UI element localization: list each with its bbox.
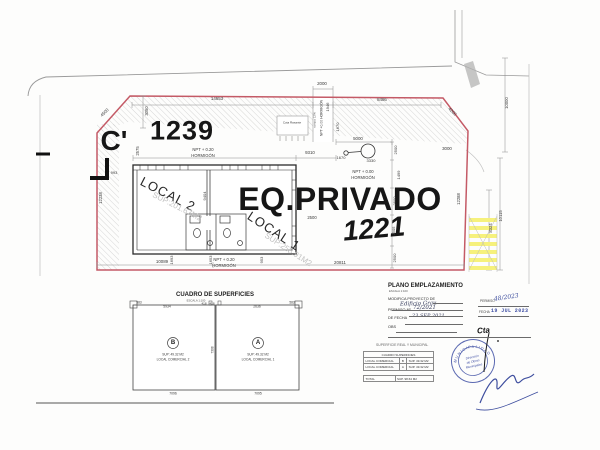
- fecha2-value: 19 JUL 2023: [491, 309, 528, 314]
- sdim-a-top: 2636: [253, 305, 261, 308]
- titleblock-scale: ESCALA 1:100: [389, 290, 408, 293]
- signature-scribble: [476, 374, 538, 410]
- total-label: TOTAL: [364, 376, 396, 382]
- site-plan-drawing: MUNICIPALIDAD Dirección de Obras Municip…: [0, 0, 600, 450]
- underline: [478, 306, 529, 307]
- sdim-a-bottom: 7095: [254, 392, 262, 395]
- npt-000-entry-vertical: NPT +0.00 HORMIGÓN: [320, 100, 323, 136]
- hormigon-court: HORMIGÓN: [351, 176, 375, 180]
- dim-street-10000: 10000: [505, 97, 509, 109]
- dim-cross-10115: 10115: [499, 210, 503, 221]
- unit-b-letter: B: [171, 340, 175, 346]
- underline: [409, 316, 463, 317]
- sdim-middle-height: 7308: [211, 346, 214, 353]
- total-table: TOTAL SUP. 98.64 M2: [363, 375, 434, 382]
- unit-a-sup: SUP: 49.32 M2: [247, 353, 269, 356]
- dim-court-2500: 2500: [307, 216, 316, 220]
- fecha2-label: FECHA: [479, 311, 490, 314]
- npt-020-bottom: NPT + 0.20: [213, 258, 234, 262]
- section-marker-label: C': [101, 127, 128, 155]
- sdim-center-b: 418: [209, 303, 214, 306]
- parcel-number-top: 1239: [150, 118, 214, 145]
- row2-value: SUP. 49.32 M2: [407, 364, 434, 370]
- surfaces-title: CUADRO DE SUPERFICIES: [176, 292, 254, 298]
- dim-pole-3330: 3330: [367, 159, 376, 163]
- unit-b-sup: SUP: 49.32 M2: [162, 353, 184, 356]
- dim-left-993: 993: [111, 171, 118, 175]
- hormigon-top: HORMIGÓN: [191, 154, 215, 158]
- dim-pole-offset: 1670: [337, 156, 346, 160]
- underline: [396, 332, 457, 333]
- dim-building-front: 9310: [305, 151, 315, 155]
- dim-bottom-1653: 1653: [209, 256, 213, 265]
- municipal-stamp: MUNICIPALIDAD Dirección de Obras Municip…: [447, 335, 498, 386]
- underline: [478, 316, 529, 317]
- permiso2-label: PERMISO: [480, 300, 495, 303]
- dim-cross-8324: 8324: [489, 223, 493, 232]
- eq-privado-label: EQ.PRIVADO: [238, 183, 442, 215]
- sdim-b-bottom: 7096: [169, 392, 177, 395]
- cota-rasante-label: Cota Rasante: [283, 122, 301, 125]
- dim-col-2500a: 2500: [394, 146, 398, 155]
- npt-020-top: NPT + 0.20: [192, 148, 213, 152]
- underline: [433, 303, 463, 304]
- dim-right-3000: 3000: [442, 147, 452, 151]
- dim-court-5000: 5000: [353, 137, 363, 141]
- dim-bottom-20811: 20811: [334, 261, 346, 265]
- underline: [392, 310, 463, 311]
- de-fecha-label: DE FECHA: [388, 317, 407, 321]
- dim-entry-width: 2000: [317, 82, 327, 86]
- dim-left-2575: 2575: [136, 146, 140, 155]
- crosswalk-band: [464, 61, 480, 88]
- hormigon-bottom: HORMIGÓN: [212, 264, 236, 268]
- surfaces-diagram-lines: [130, 301, 302, 390]
- pole-symbol: [344, 144, 375, 158]
- dim-right-boundary: 12288: [457, 193, 461, 205]
- dim-entry-1946: 1946: [326, 103, 330, 112]
- dim-bottom-953: 953: [260, 257, 264, 264]
- dim-left-boundary: 12238: [99, 192, 103, 204]
- unit-b-name: LOCAL COMERCIAL 2: [157, 358, 190, 361]
- dim-local2-depth: 9404: [203, 192, 207, 201]
- dim-bottom-1693: 1693: [170, 256, 174, 265]
- dim-top-left: 14653: [211, 97, 223, 101]
- row2-letter: A: [400, 364, 407, 370]
- surfaces-summary-table: CUADRO SUPERFICIES LOCAL COMERCIAL B SUP…: [363, 351, 434, 371]
- dim-col-2500c: 2500: [393, 254, 397, 263]
- dim-top-right: 8486: [377, 98, 387, 102]
- dim-sidewalk-depth: 3050: [145, 106, 149, 115]
- handwritten-note: Cta: [477, 326, 491, 335]
- unit-a-letter: A: [256, 340, 260, 346]
- sdim-b-top: 5934: [163, 305, 171, 308]
- parcel-number-main: 1221: [342, 212, 407, 245]
- approval-header: SUPERFICIE REAL Y MUNICIPAL: [376, 344, 428, 347]
- ink-dot: [497, 340, 499, 342]
- underline: [388, 337, 531, 338]
- unit-a-name: LOCAL COMERCIAL 1: [242, 358, 275, 361]
- sdim-corner-right: 583: [289, 301, 294, 304]
- npt-000-court: NPT + 0.00: [352, 170, 373, 174]
- sdim-center-a: 418: [201, 303, 206, 306]
- sdim-corner-left: 583: [136, 301, 141, 304]
- dim-col-1499: 1499: [397, 171, 401, 180]
- dim-col-2500b: 2500: [393, 197, 397, 206]
- ramp-label: rampa 12%: [313, 112, 316, 128]
- dim-entry-1670: 1670: [336, 123, 340, 132]
- total-value: SUP. 98.64 M2: [395, 376, 434, 382]
- underline: [405, 324, 463, 325]
- dim-bottom-10089: 10089: [156, 260, 168, 264]
- dim-col-2505: 2505: [392, 227, 396, 236]
- scanned-site-plan-sheet: MUNICIPALIDAD Dirección de Obras Municip…: [0, 0, 600, 450]
- obs-label: OBS: [388, 326, 396, 330]
- row2-name: LOCAL COMERCIAL: [364, 364, 400, 370]
